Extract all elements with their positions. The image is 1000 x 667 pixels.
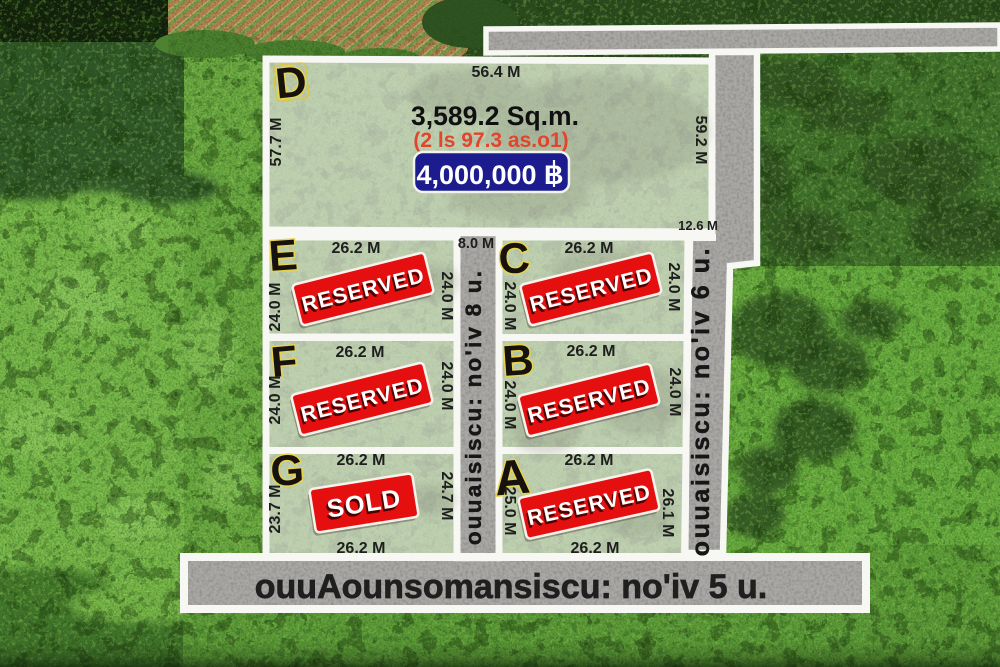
svg-text:26.2 M: 26.2 M <box>336 344 385 361</box>
svg-text:56.4 M: 56.4 M <box>472 64 521 81</box>
svg-text:24.0 M: 24.0 M <box>438 272 455 321</box>
svg-text:ouuaisiscu: no'iv 8 u.: ouuaisiscu: no'iv 8 u. <box>461 269 486 545</box>
svg-text:24.0 M: 24.0 M <box>665 263 682 312</box>
svg-text:26.2 M: 26.2 M <box>337 452 386 469</box>
svg-text:24.0 M: 24.0 M <box>267 376 284 425</box>
svg-text:24.0 M: 24.0 M <box>501 282 518 331</box>
svg-text:26.1 M: 26.1 M <box>659 489 676 538</box>
svg-text:24.0 M: 24.0 M <box>501 381 518 430</box>
svg-text:59.2 M: 59.2 M <box>692 116 709 165</box>
svg-text:C: C <box>497 234 532 285</box>
svg-text:57.7 M: 57.7 M <box>268 118 285 167</box>
svg-text:24.0 M: 24.0 M <box>438 362 455 411</box>
svg-text:24.0 M: 24.0 M <box>666 368 683 417</box>
svg-text:D: D <box>273 58 309 109</box>
svg-text:26.2 M: 26.2 M <box>565 452 614 469</box>
svg-text:3,589.2 Sq.m.: 3,589.2 Sq.m. <box>411 101 579 131</box>
svg-text:ouuaisiscu: no'iv 6 u.: ouuaisiscu: no'iv 6 u. <box>687 246 715 556</box>
svg-text:26.2 M: 26.2 M <box>565 240 614 257</box>
svg-text:(2 ls 97.3 as.o1): (2 ls 97.3 as.o1) <box>413 129 568 152</box>
svg-text:25.0 M: 25.0 M <box>501 487 518 536</box>
svg-text:E: E <box>267 231 299 281</box>
svg-text:24.0 M: 24.0 M <box>267 283 284 332</box>
svg-text:24.7 M: 24.7 M <box>438 472 455 521</box>
svg-text:B: B <box>501 336 535 386</box>
svg-text:12.6 M: 12.6 M <box>678 218 718 233</box>
svg-text:26.2 M: 26.2 M <box>332 240 381 257</box>
svg-text:4,000,000 B: 4,000,000 B <box>416 160 563 190</box>
svg-text:26.2 M: 26.2 M <box>337 540 386 557</box>
svg-text:26.2 M: 26.2 M <box>571 540 620 557</box>
svg-text:ouuAounsomansiscu: no'iv 5 u.: ouuAounsomansiscu: no'iv 5 u. <box>255 568 767 606</box>
svg-text:8.0 M: 8.0 M <box>458 236 494 252</box>
svg-text:26.2 M: 26.2 M <box>567 343 616 360</box>
svg-text:23.7 M: 23.7 M <box>267 485 284 534</box>
